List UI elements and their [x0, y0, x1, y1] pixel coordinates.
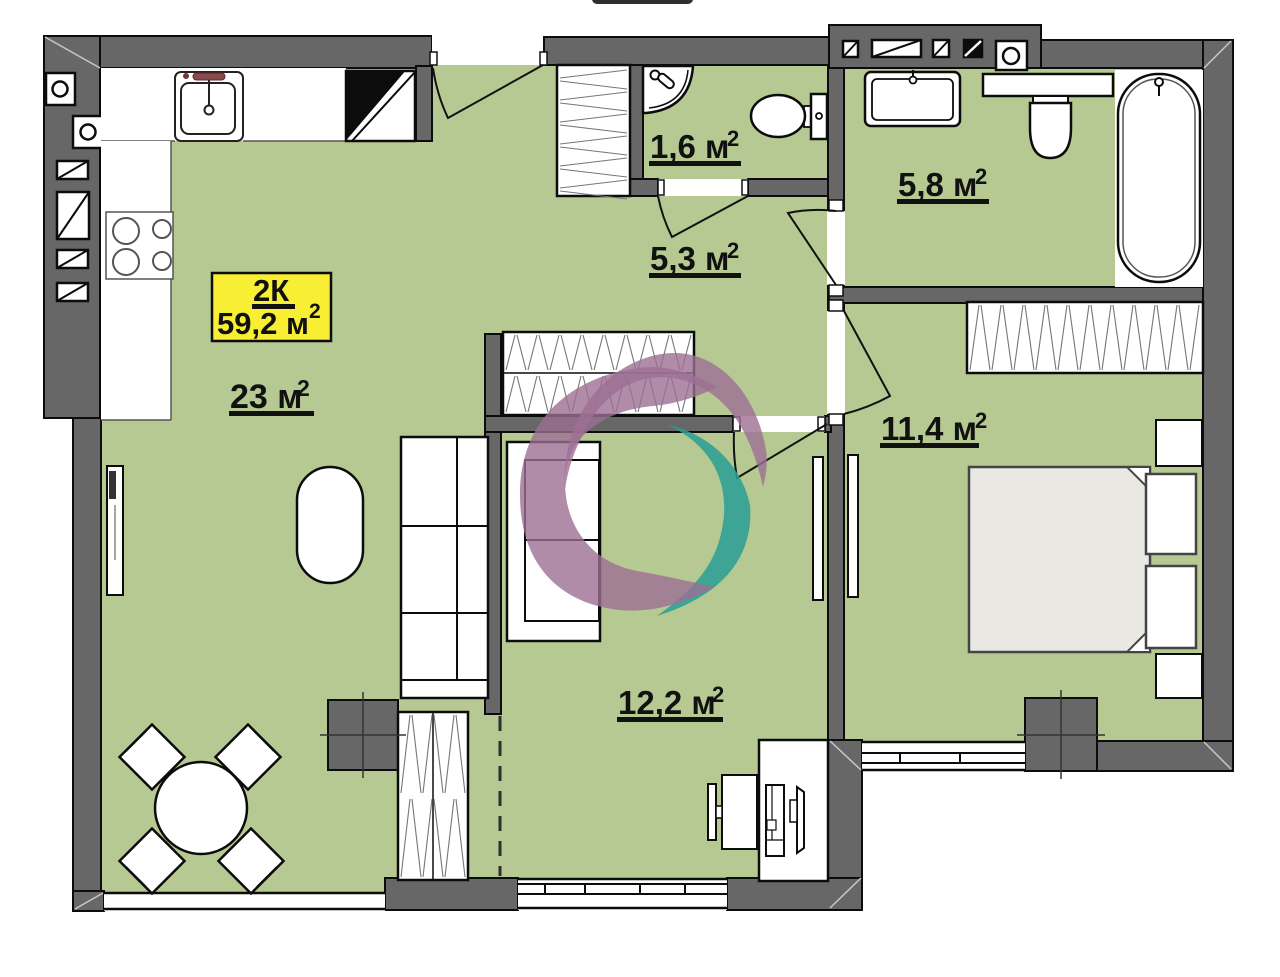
svg-text:5,8 м: 5,8 м	[898, 166, 977, 203]
svg-text:12,2 м: 12,2 м	[618, 684, 716, 721]
svg-text:2: 2	[975, 408, 987, 433]
svg-text:2: 2	[975, 164, 987, 189]
svg-text:2: 2	[309, 300, 321, 323]
svg-text:2: 2	[727, 126, 739, 151]
svg-text:2: 2	[297, 375, 310, 401]
svg-text:5,3 м: 5,3 м	[650, 240, 729, 277]
svg-text:59,2 м: 59,2 м	[217, 306, 309, 341]
svg-text:2: 2	[712, 682, 724, 707]
svg-text:11,4 м: 11,4 м	[881, 410, 977, 447]
svg-text:23 м: 23 м	[230, 378, 302, 416]
svg-text:2: 2	[727, 238, 739, 263]
svg-text:1,6 м: 1,6 м	[650, 128, 729, 165]
svg-text:2К: 2К	[253, 273, 289, 308]
